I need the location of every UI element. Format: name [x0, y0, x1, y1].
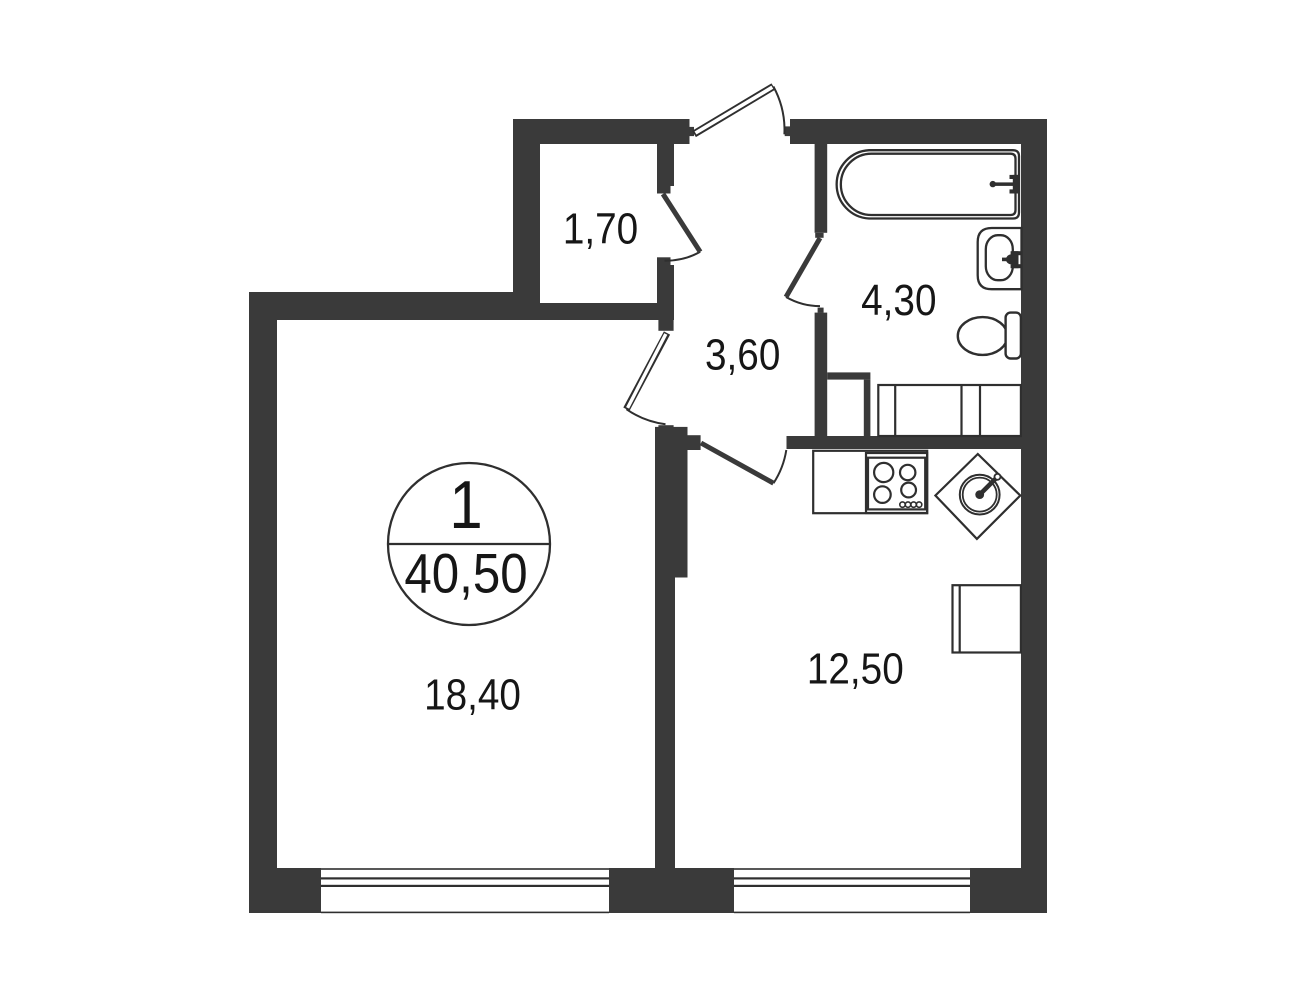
svg-text:4,30: 4,30 — [861, 275, 936, 325]
svg-text:12,50: 12,50 — [807, 643, 904, 693]
svg-text:18,40: 18,40 — [424, 669, 521, 719]
svg-text:1,70: 1,70 — [563, 203, 638, 253]
svg-text:3,60: 3,60 — [705, 329, 780, 379]
svg-text:1: 1 — [449, 466, 482, 542]
svg-text:40,50: 40,50 — [404, 543, 527, 606]
